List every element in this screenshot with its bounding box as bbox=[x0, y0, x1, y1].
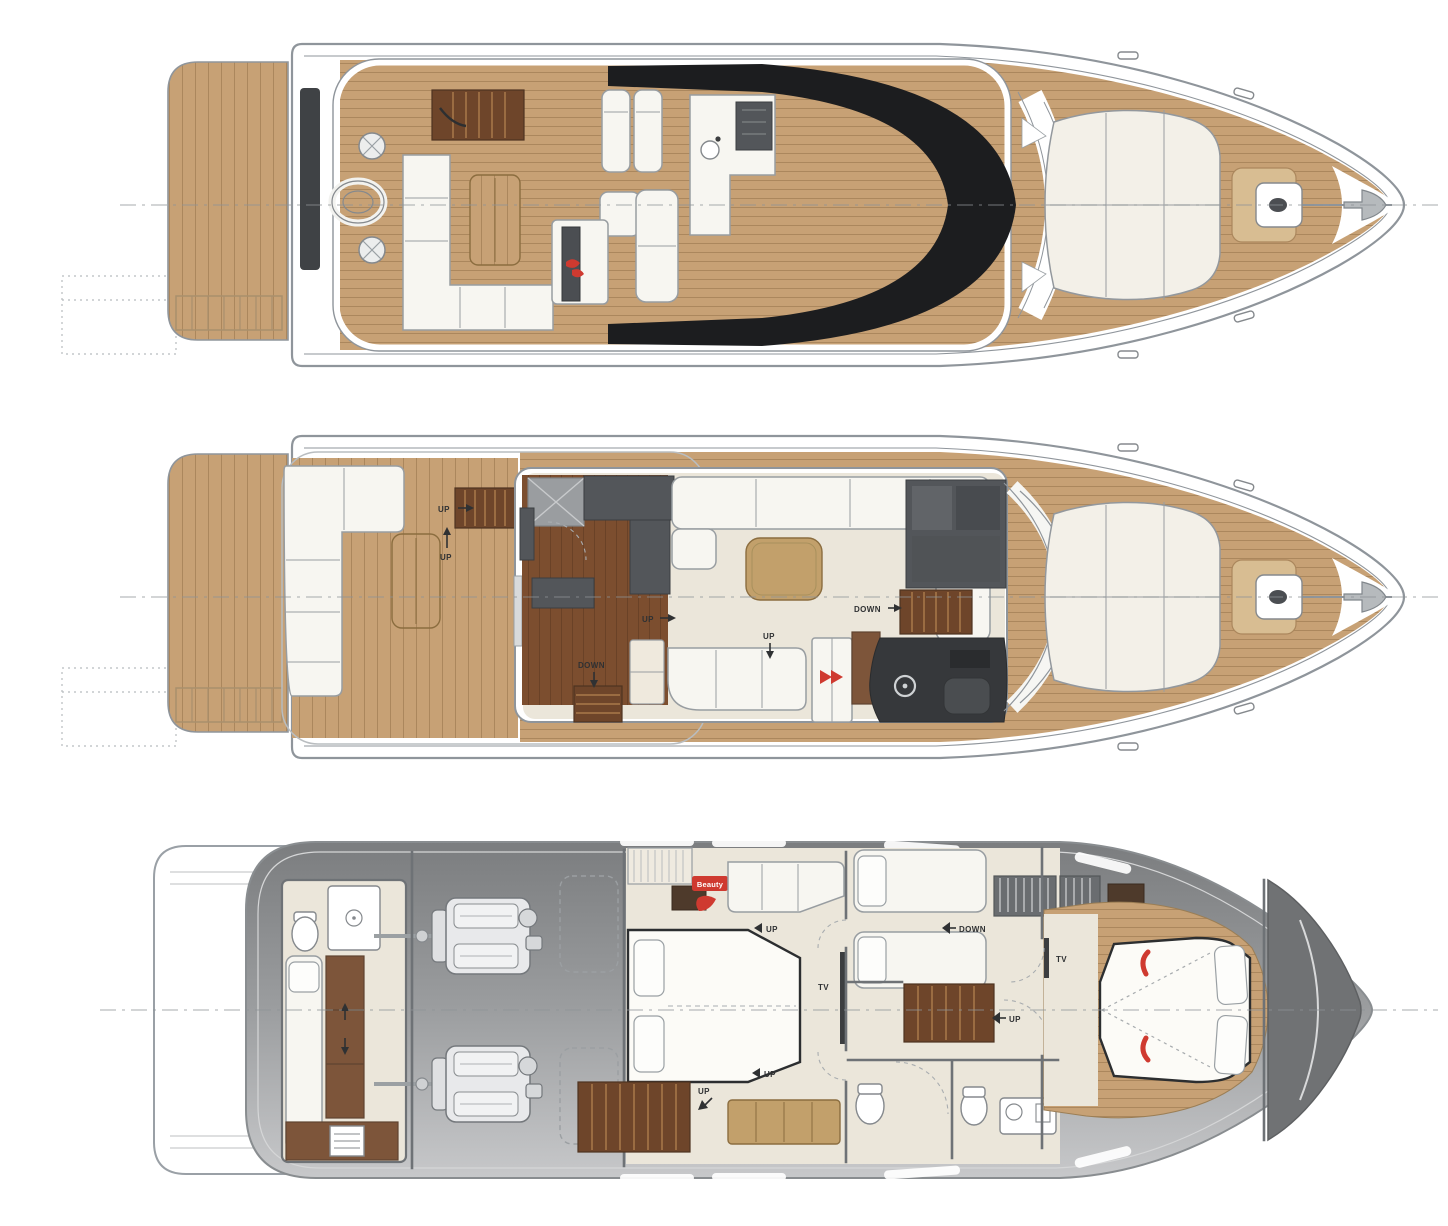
gangway-projection-lines bbox=[62, 668, 176, 746]
galley-appliance bbox=[520, 508, 534, 560]
master-wardrobe bbox=[628, 848, 692, 884]
galley-counter-inboard bbox=[630, 520, 670, 594]
foredeck-sunpad bbox=[1045, 110, 1220, 300]
companionway-stairs-main bbox=[904, 984, 994, 1042]
gangway-projection-lines bbox=[62, 276, 176, 354]
yacht-three-deck-plan: UP UP UP UP DOWN bbox=[0, 0, 1448, 1226]
svg-text:DOWN: DOWN bbox=[959, 925, 986, 934]
label-tv-master: TV bbox=[818, 983, 829, 992]
sideboard-module bbox=[552, 220, 608, 304]
galley-counter-aft bbox=[584, 476, 674, 520]
salon-settee-starboard bbox=[668, 648, 806, 710]
foredeck-sunpad bbox=[1045, 502, 1220, 692]
swim-platform bbox=[168, 454, 288, 732]
svg-text:UP: UP bbox=[763, 632, 775, 641]
grill bbox=[736, 102, 772, 150]
companionway-stairs-galley bbox=[578, 1082, 690, 1152]
label-tv-vip: TV bbox=[1056, 955, 1067, 964]
svg-text:DOWN: DOWN bbox=[578, 661, 605, 670]
svg-text:UP: UP bbox=[764, 1070, 776, 1079]
galley bbox=[520, 475, 674, 705]
galley-stairs-down bbox=[574, 686, 622, 722]
svg-text:UP: UP bbox=[438, 505, 450, 514]
lower-deck-plan: Beauty bbox=[100, 838, 1438, 1182]
salon-door bbox=[514, 576, 522, 646]
salon bbox=[514, 468, 1007, 722]
deck-plans-canvas: UP UP UP UP DOWN bbox=[0, 0, 1448, 1226]
flybridge-stairs-arrival bbox=[432, 90, 524, 140]
svg-text:UP: UP bbox=[440, 553, 452, 562]
svg-text:UP: UP bbox=[766, 925, 778, 934]
toilet-icon bbox=[292, 917, 318, 951]
crew-cabin bbox=[282, 880, 406, 1162]
main-deck-plan: UP UP UP UP DOWN bbox=[62, 436, 1438, 758]
crew-cabinets bbox=[326, 956, 364, 1118]
master-bed bbox=[628, 930, 800, 1082]
svg-text:UP: UP bbox=[698, 1087, 710, 1096]
vip-tv-panel bbox=[1044, 938, 1049, 978]
svg-text:Beauty: Beauty bbox=[697, 880, 724, 889]
aft-hatch-slot bbox=[300, 88, 320, 270]
faucet-icon bbox=[715, 136, 720, 141]
beauty-tag: Beauty bbox=[692, 876, 728, 891]
svg-text:UP: UP bbox=[642, 615, 654, 624]
svg-text:UP: UP bbox=[1009, 1015, 1021, 1024]
swim-platform bbox=[168, 62, 288, 340]
flybridge-deck-plan bbox=[62, 44, 1438, 366]
svg-text:DOWN: DOWN bbox=[854, 605, 881, 614]
sink-icon bbox=[701, 141, 719, 159]
galley-island bbox=[532, 578, 594, 608]
salon-table bbox=[746, 538, 822, 600]
